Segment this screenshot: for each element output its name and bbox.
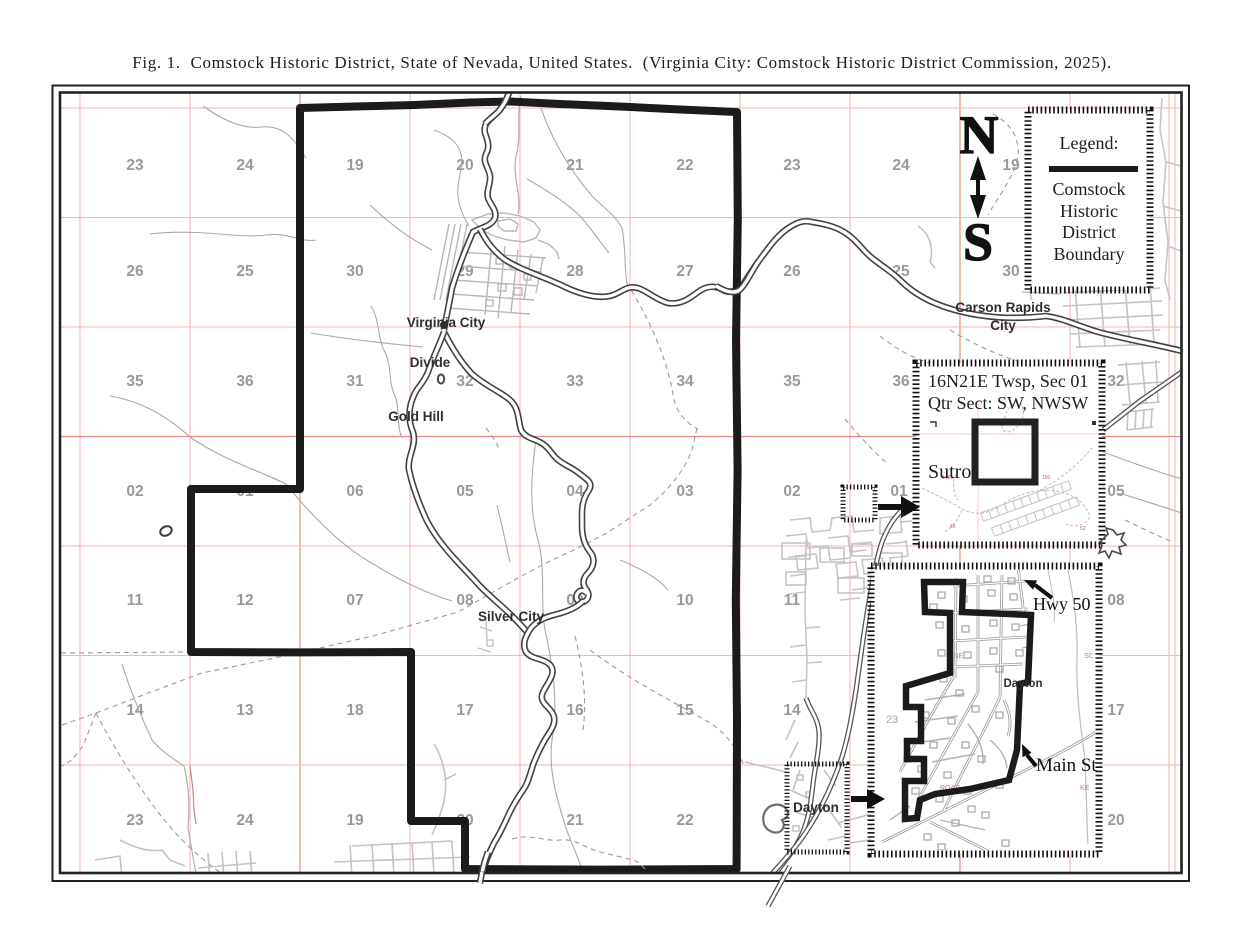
svg-text:150: 150 (1042, 475, 1051, 481)
svg-text:30: 30 (1002, 263, 1019, 280)
svg-text:21: 21 (566, 812, 584, 829)
svg-text:30: 30 (346, 263, 363, 280)
svg-text:08: 08 (456, 592, 474, 609)
svg-text:Dayton: Dayton (793, 800, 839, 815)
svg-text:05: 05 (1107, 483, 1125, 500)
svg-text:35: 35 (126, 373, 144, 390)
svg-text:20: 20 (1107, 812, 1124, 829)
svg-text:31: 31 (346, 373, 364, 390)
svg-text:N: N (960, 105, 999, 165)
svg-text:Main St: Main St (1036, 755, 1097, 776)
svg-text:23: 23 (886, 714, 898, 726)
svg-text:18: 18 (346, 702, 364, 719)
svg-text:Comstock: Comstock (1052, 179, 1125, 199)
svg-text:22: 22 (676, 812, 693, 829)
svg-text:Historic: Historic (1060, 201, 1118, 221)
svg-text:27: 27 (676, 263, 693, 280)
svg-text:46: 46 (950, 524, 956, 530)
svg-text:05: 05 (456, 483, 474, 500)
svg-text:32: 32 (1107, 373, 1124, 390)
svg-text:KE: KE (1080, 785, 1090, 792)
svg-text:23: 23 (783, 157, 801, 174)
svg-text:06: 06 (346, 483, 364, 500)
svg-text:01: 01 (890, 483, 908, 500)
svg-text:26: 26 (126, 263, 144, 280)
svg-text:52: 52 (1080, 526, 1086, 532)
svg-text:Carson Rapids: Carson Rapids (955, 300, 1050, 315)
svg-text:35: 35 (783, 373, 801, 390)
svg-text:SC: SC (1084, 653, 1094, 660)
svg-text:Silver City: Silver City (478, 609, 545, 624)
svg-text:17: 17 (1107, 702, 1124, 719)
svg-text:20: 20 (456, 157, 473, 174)
svg-text:8: 8 (906, 523, 909, 529)
svg-text:11: 11 (784, 592, 801, 609)
svg-text:02: 02 (783, 483, 800, 500)
svg-text:Qtr Sect: SW, NWSW: Qtr Sect: SW, NWSW (928, 393, 1088, 413)
svg-text:12: 12 (236, 592, 253, 609)
svg-text:City: City (990, 318, 1016, 333)
svg-text:Virginia City: Virginia City (407, 315, 486, 330)
svg-text:24: 24 (236, 157, 254, 174)
svg-text:Dayton: Dayton (1004, 678, 1043, 690)
svg-text:15: 15 (676, 702, 694, 719)
svg-text:S: S (963, 212, 993, 272)
svg-text:17: 17 (456, 702, 473, 719)
svg-text:Legend:: Legend: (1060, 133, 1119, 153)
svg-text:07: 07 (346, 592, 363, 609)
svg-text:Fig. 1. Comstock Historic Dis: Fig. 1. Comstock Historic District, Stat… (132, 53, 1112, 72)
svg-text:33: 33 (566, 373, 584, 390)
svg-text:13: 13 (236, 702, 254, 719)
svg-text:22: 22 (676, 157, 693, 174)
svg-text:Divide: Divide (410, 355, 451, 370)
svg-text:26: 26 (783, 263, 801, 280)
svg-text:25: 25 (236, 263, 254, 280)
svg-text:08: 08 (1107, 592, 1125, 609)
svg-text:02: 02 (126, 483, 143, 500)
svg-text:16: 16 (566, 702, 584, 719)
svg-text:24: 24 (236, 812, 254, 829)
svg-text:36: 36 (236, 373, 254, 390)
svg-text:03: 03 (676, 483, 694, 500)
svg-text:24: 24 (892, 157, 910, 174)
svg-text:19: 19 (346, 812, 364, 829)
svg-text:23: 23 (126, 812, 144, 829)
svg-text:28: 28 (566, 263, 584, 280)
svg-text:34: 34 (676, 373, 694, 390)
svg-text:11: 11 (127, 592, 144, 609)
svg-text:36: 36 (892, 373, 910, 390)
svg-text:Hwy 50: Hwy 50 (1033, 594, 1091, 614)
svg-text:District: District (1062, 222, 1116, 242)
svg-text:19: 19 (346, 157, 364, 174)
svg-text:Boundary: Boundary (1054, 244, 1125, 264)
svg-text:14: 14 (783, 702, 801, 719)
svg-text:10: 10 (676, 592, 693, 609)
svg-text:23: 23 (126, 157, 144, 174)
svg-text:Sutro: Sutro (928, 461, 971, 483)
svg-text:Gold Hill: Gold Hill (388, 409, 444, 424)
svg-text:16N21E Twsp, Sec 01: 16N21E Twsp, Sec 01 (928, 371, 1088, 391)
